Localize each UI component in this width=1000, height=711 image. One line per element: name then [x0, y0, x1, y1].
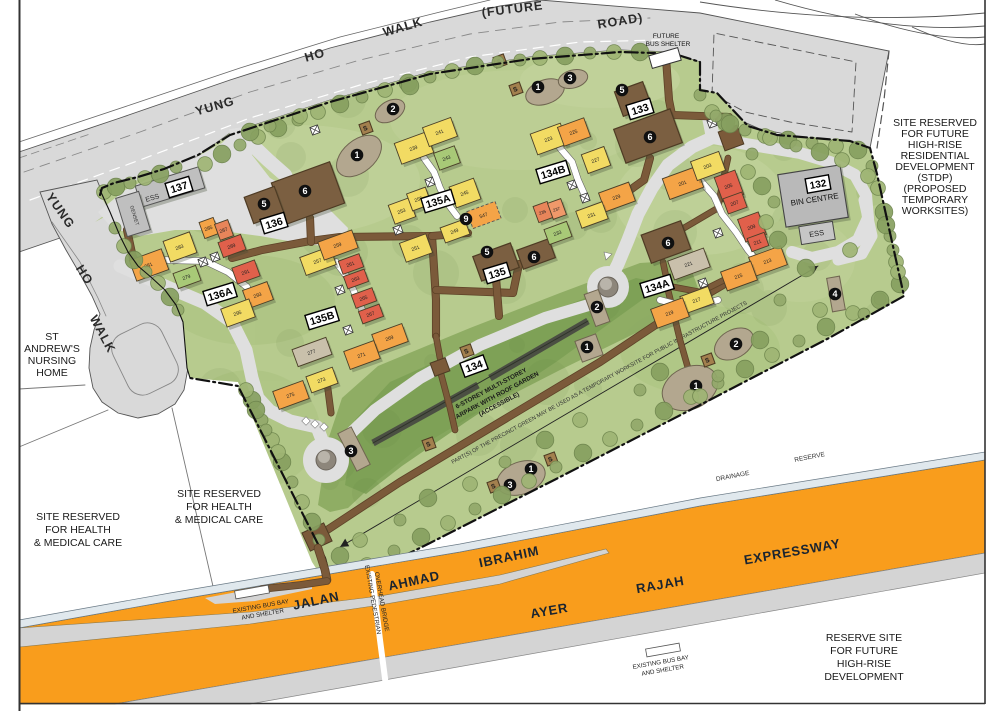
svg-text:FUTURE: FUTURE	[653, 33, 680, 40]
svg-text:5: 5	[619, 85, 624, 95]
svg-text:1: 1	[354, 150, 359, 160]
svg-text:SITE RESERVEDFOR FUTUREHIGH-RI: SITE RESERVEDFOR FUTUREHIGH-RISERESIDENT…	[893, 117, 977, 217]
svg-text:2: 2	[733, 339, 738, 349]
svg-text:6: 6	[647, 132, 652, 142]
svg-text:9: 9	[463, 214, 468, 224]
svg-text:SITE RESERVEDFOR HEALTH& MEDIC: SITE RESERVEDFOR HEALTH& MEDICAL CARE	[34, 511, 122, 549]
svg-text:2: 2	[594, 302, 599, 312]
svg-text:6: 6	[665, 238, 670, 248]
svg-text:3: 3	[567, 73, 572, 83]
svg-text:3: 3	[348, 446, 353, 456]
svg-text:2: 2	[390, 104, 395, 114]
svg-text:1: 1	[584, 342, 589, 352]
svg-text:1: 1	[528, 464, 533, 474]
svg-text:5: 5	[261, 199, 266, 209]
svg-text:SITE RESERVEDFOR HEALTH& MEDIC: SITE RESERVEDFOR HEALTH& MEDICAL CARE	[175, 488, 263, 526]
svg-text:6: 6	[302, 186, 307, 196]
svg-text:6: 6	[531, 252, 536, 262]
svg-text:1: 1	[535, 82, 540, 92]
svg-text:4: 4	[832, 289, 837, 299]
svg-text:BUS SHELTER: BUS SHELTER	[646, 41, 691, 48]
svg-text:5: 5	[484, 247, 489, 257]
